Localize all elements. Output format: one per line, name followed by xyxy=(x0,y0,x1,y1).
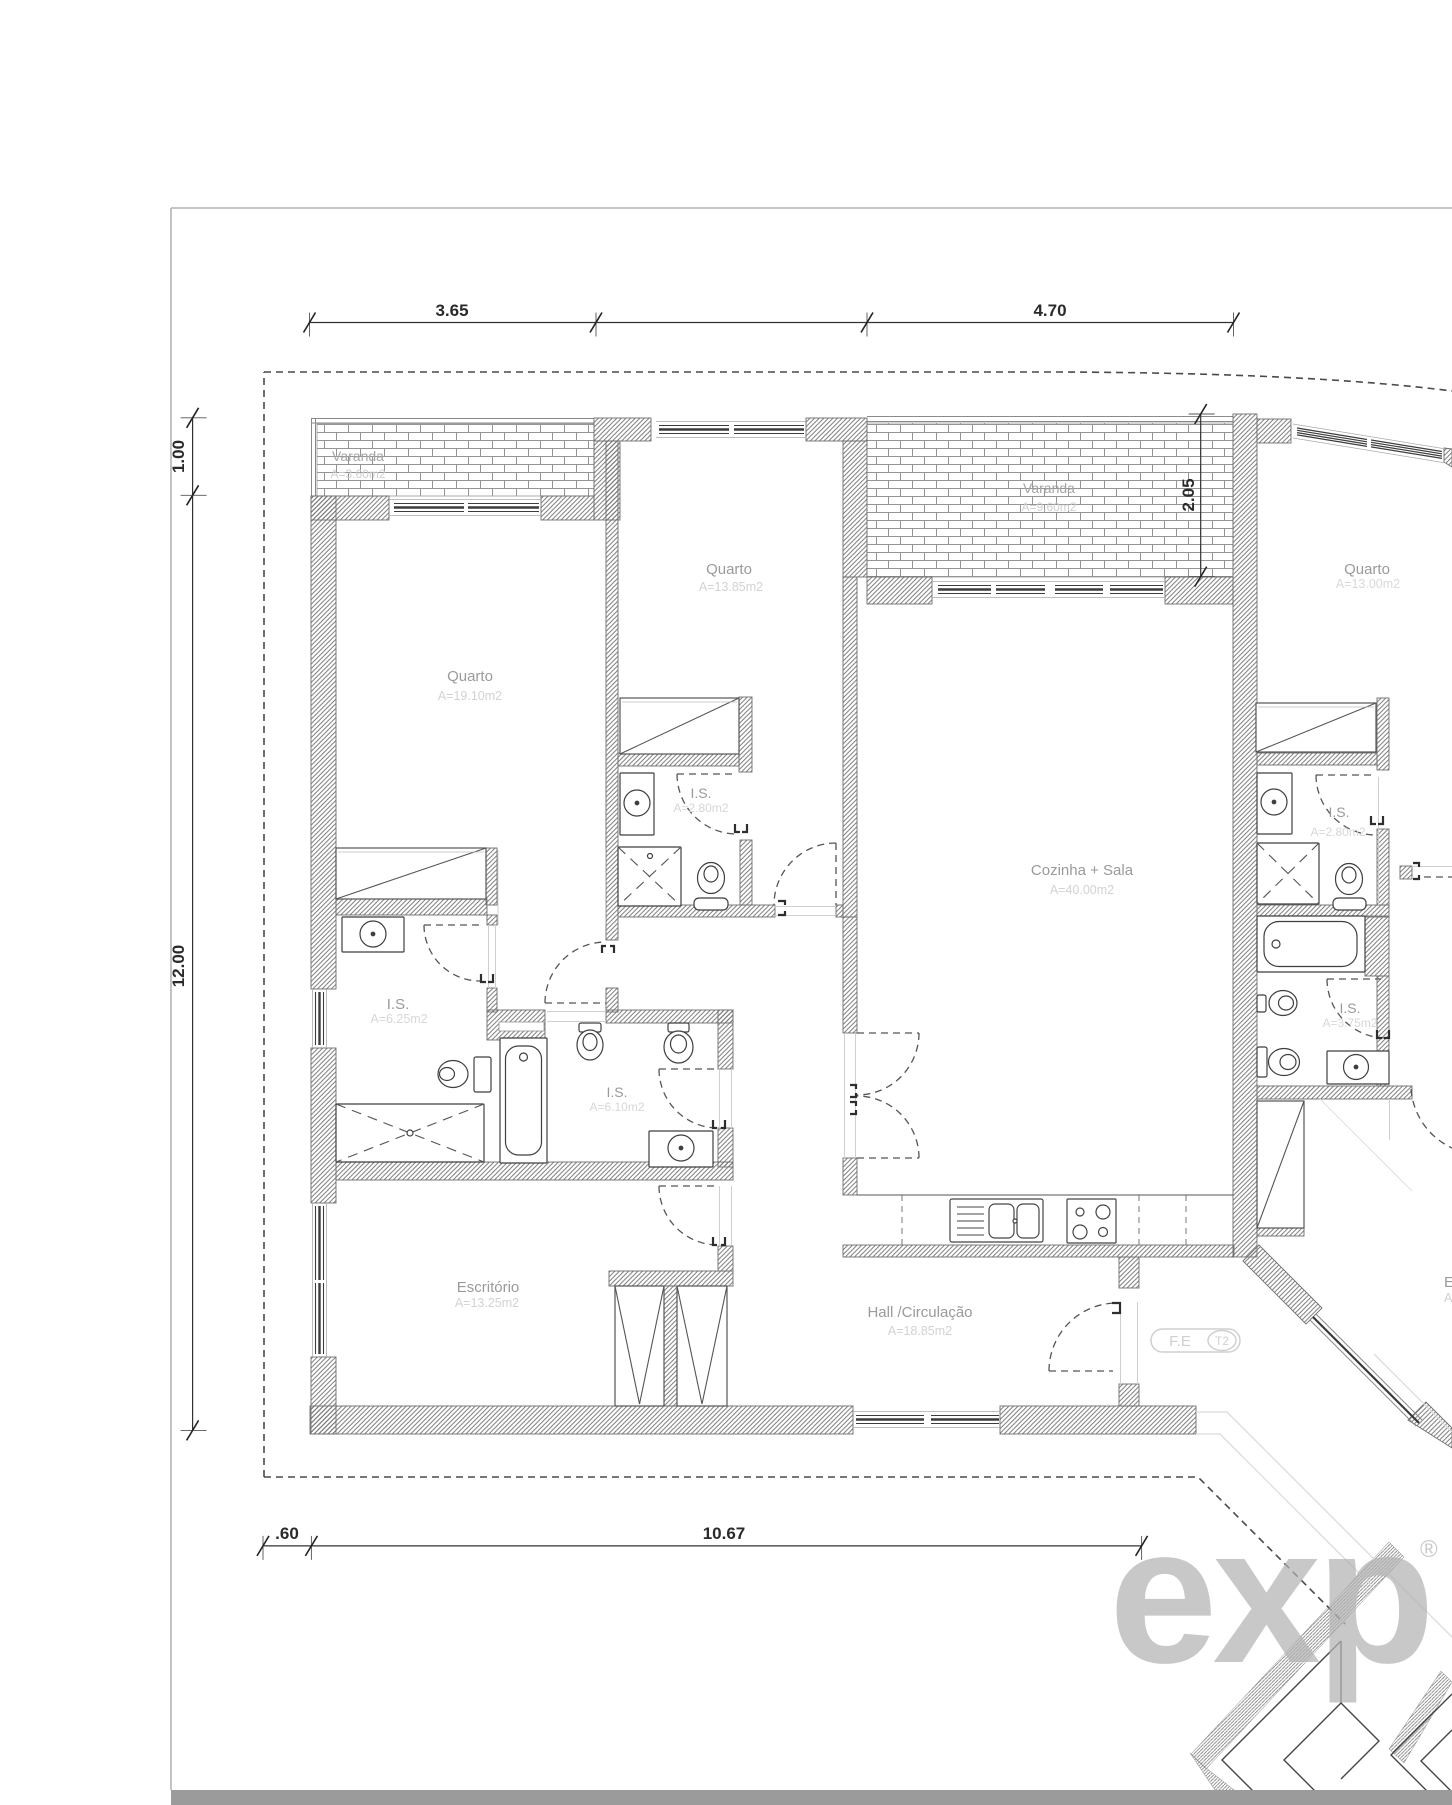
svg-text:A=19.10m2: A=19.10m2 xyxy=(438,689,502,703)
svg-text:A=12.00m2: A=12.00m2 xyxy=(1444,1291,1452,1305)
svg-text:T2: T2 xyxy=(1215,1334,1229,1348)
svg-text:A=40.00m2: A=40.00m2 xyxy=(1050,883,1114,897)
svg-text:I.S.: I.S. xyxy=(690,785,711,801)
svg-text:Quarto: Quarto xyxy=(1344,561,1390,578)
svg-text:®: ® xyxy=(1420,1536,1438,1563)
svg-text:.60: .60 xyxy=(275,1524,299,1543)
svg-text:exp: exp xyxy=(1109,1486,1430,1704)
svg-text:4.70: 4.70 xyxy=(1033,301,1066,320)
svg-text:A=13.85m2: A=13.85m2 xyxy=(699,580,763,594)
svg-text:3.65: 3.65 xyxy=(435,301,468,320)
svg-text:A=6.25m2: A=6.25m2 xyxy=(370,1012,427,1026)
svg-text:1.00: 1.00 xyxy=(169,440,188,473)
svg-text:12.00: 12.00 xyxy=(169,945,188,988)
svg-text:A=13.00m2: A=13.00m2 xyxy=(1336,577,1400,591)
svg-text:2.05: 2.05 xyxy=(1179,478,1198,511)
svg-text:I.S.: I.S. xyxy=(1328,804,1349,820)
svg-text:I.S.: I.S. xyxy=(606,1084,627,1100)
svg-text:Escritório: Escritório xyxy=(1444,1274,1452,1291)
svg-text:A=2.80m2: A=2.80m2 xyxy=(673,801,728,815)
svg-text:A=9.60m2: A=9.60m2 xyxy=(1021,500,1076,514)
svg-text:Varanda: Varanda xyxy=(332,448,384,464)
svg-text:Quarto: Quarto xyxy=(706,561,752,578)
svg-text:Escritório: Escritório xyxy=(457,1279,520,1296)
svg-text:F.E: F.E xyxy=(1169,1333,1191,1350)
svg-text:I.S.: I.S. xyxy=(1339,1000,1360,1016)
svg-text:Varanda: Varanda xyxy=(1023,480,1075,496)
svg-text:A=13.25m2: A=13.25m2 xyxy=(455,1296,519,1310)
svg-text:10.67: 10.67 xyxy=(703,1524,746,1543)
svg-text:Cozinha + Sala: Cozinha + Sala xyxy=(1031,862,1134,879)
svg-text:Quarto: Quarto xyxy=(447,668,493,685)
svg-text:A=6.10m2: A=6.10m2 xyxy=(589,1100,644,1114)
svg-text:I.S.: I.S. xyxy=(387,996,410,1013)
svg-text:A=2.80m2: A=2.80m2 xyxy=(1310,825,1365,839)
svg-text:A=18.85m2: A=18.85m2 xyxy=(888,1324,952,1338)
svg-text:A=3.75m2: A=3.75m2 xyxy=(1322,1016,1377,1030)
svg-text:Hall /Circulação: Hall /Circulação xyxy=(867,1304,972,1321)
svg-text:A=3.60m2: A=3.60m2 xyxy=(330,467,385,481)
